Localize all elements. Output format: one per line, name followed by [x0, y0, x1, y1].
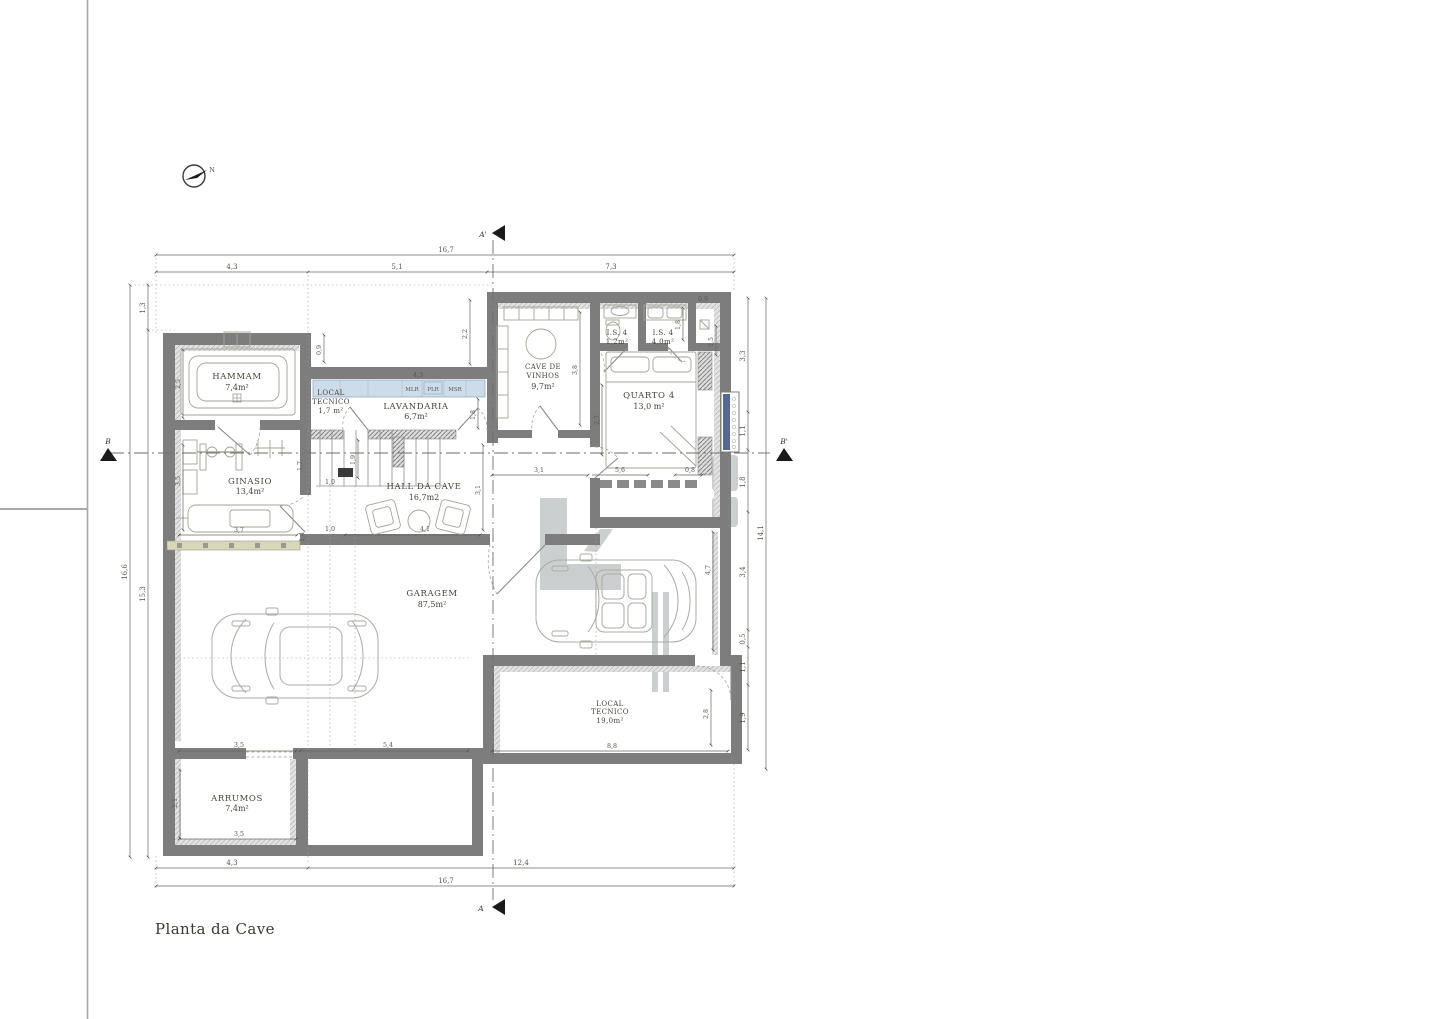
dim-right-seg: 1,9: [739, 712, 747, 723]
dim-internal: 1,0: [325, 479, 335, 486]
dryer-label: PLR: [427, 387, 439, 393]
dim-internal: 4,3: [413, 372, 423, 379]
room-area-hammam: 7,4m²: [225, 383, 249, 392]
dim-internal: 1,5: [708, 337, 715, 347]
room-area-quarto4: 13,0 m²: [633, 402, 664, 411]
dim-bottom-seg: 12,4: [513, 859, 529, 867]
dim-right-seg: 3,4: [739, 566, 747, 578]
dim-internal: 2,5: [175, 379, 182, 389]
car-icon: [212, 608, 378, 704]
dim-internal: 0,8: [685, 467, 695, 474]
section-marker-b-right: B': [779, 437, 788, 446]
dim-left-outer: 16,6: [121, 564, 129, 580]
room-label-hall: HALL DA CAVE: [387, 482, 462, 492]
dim-internal: 3,1: [534, 467, 544, 474]
dim-left-top: 1,3: [139, 302, 147, 313]
room-label-local-tecnico-small: TECNICO: [312, 398, 350, 406]
room-label-garagem: GARAGEM: [406, 589, 457, 599]
dim-internal: 0,9: [698, 296, 708, 303]
dim-internal: 4,1: [420, 526, 430, 533]
dim-internal: 1,8: [675, 320, 682, 330]
room-label-hammam: HAMMAM: [212, 372, 261, 382]
room-label-quarto4: QUARTO 4: [623, 391, 675, 401]
room-label-local-tecnico-large: LOCAL: [596, 700, 623, 708]
dim-right-seg: 3,3: [739, 350, 747, 361]
dim-internal: 1,7: [297, 461, 304, 471]
floor-plan-drawing: N: [0, 0, 1440, 1019]
dim-internal: 2,1: [172, 798, 179, 808]
dim-internal: 2,7: [594, 415, 601, 425]
dim-right-seg: 1,1: [739, 425, 747, 436]
dim-internal: 3,5: [234, 742, 244, 749]
room-label-ginasio: GINASIO: [228, 477, 272, 487]
dim-internal: 5,4: [383, 742, 393, 749]
north-label: N: [209, 167, 215, 174]
room-area-lavandaria: 6,7m²: [404, 412, 428, 421]
dim-right-seg: 1,8: [739, 476, 747, 487]
dim-internal: 0,9: [316, 345, 323, 355]
dim-right-seg: 0,5: [739, 633, 747, 644]
dim-bottom-total: 16,7: [438, 877, 454, 885]
dim-internal: 1,0: [325, 526, 335, 533]
drawing-title: Planta da Cave: [155, 920, 275, 938]
room-area-local-tecnico-small: 1,7 m²: [318, 407, 343, 415]
room-label-local-tecnico-small: LOCAL: [317, 389, 344, 397]
room-area-cave-vinhos: 9,7m²: [531, 382, 555, 391]
hall-furniture: [365, 499, 471, 535]
washer-label: MLR: [405, 387, 419, 393]
bedroom-furniture: [606, 352, 712, 475]
dim-internal: 8,8: [607, 743, 617, 750]
room-area-ginasio: 13,4m²: [236, 487, 265, 496]
dim-left-inner: 15,3: [139, 586, 147, 602]
dim-bottom-seg: 4,3: [226, 859, 237, 867]
section-marker-b-left: B: [104, 437, 111, 446]
room-label-cave-vinhos: VINHOS: [526, 372, 560, 380]
dim-right-seg: 1,1: [739, 661, 747, 672]
room-label-arrumos: ARRUMOS: [210, 794, 263, 804]
floor-plan-sheet: N: [0, 0, 1440, 1019]
dim-internal: 2,8: [703, 709, 710, 719]
dim-top-seg: 7,3: [605, 263, 616, 271]
dim-internal: 1,9: [350, 455, 357, 465]
dim-internal: 3,8: [572, 365, 579, 375]
room-label-cave-vinhos: CAVE DE: [525, 363, 561, 371]
wall-grille: [721, 392, 739, 452]
window-strip: [167, 541, 300, 550]
section-marker-a-top: A': [478, 230, 486, 239]
dim-internal: 2,2: [462, 329, 469, 339]
dim-internal: 3,5: [175, 476, 182, 486]
room-label-is4-b: I.S. 4: [653, 329, 674, 337]
room-area-hall: 16,7m2: [409, 493, 440, 502]
room-label-lavandaria: LAVANDARIA: [383, 402, 449, 412]
machine-label: MSR: [448, 387, 462, 393]
room-label-is4-a: I.S. 4: [607, 329, 628, 337]
dim-internal: 1,4: [299, 532, 306, 542]
room-area-is4-b: 4,0m²: [652, 338, 675, 346]
dim-right-total: 14,1: [757, 525, 765, 541]
dim-internal: 5,6: [615, 467, 625, 474]
room-area-is4-a: 1,2m²: [606, 338, 629, 346]
dim-internal: 1,8: [470, 410, 477, 420]
dim-top-seg: 4,3: [226, 263, 237, 271]
room-area-local-tecnico-large: 19,0m²: [596, 717, 623, 725]
dim-internal: 4,7: [705, 565, 712, 575]
dim-internal: 3,1: [475, 485, 482, 495]
dim-top-total: 16,7: [438, 246, 454, 254]
north-arrow: N: [183, 165, 215, 187]
dim-internal: 3,5: [234, 831, 244, 838]
sheet-frame-lines: [0, 0, 88, 1019]
room-label-local-tecnico-large: TECNICO: [591, 708, 629, 716]
dim-top-seg: 5,1: [391, 263, 402, 271]
section-marker-a-bottom: A: [477, 904, 484, 913]
room-area-garagem: 87,5m²: [418, 600, 447, 609]
dim-internal: 3,7: [234, 527, 244, 534]
room-area-arrumos: 7,4m²: [225, 804, 249, 813]
